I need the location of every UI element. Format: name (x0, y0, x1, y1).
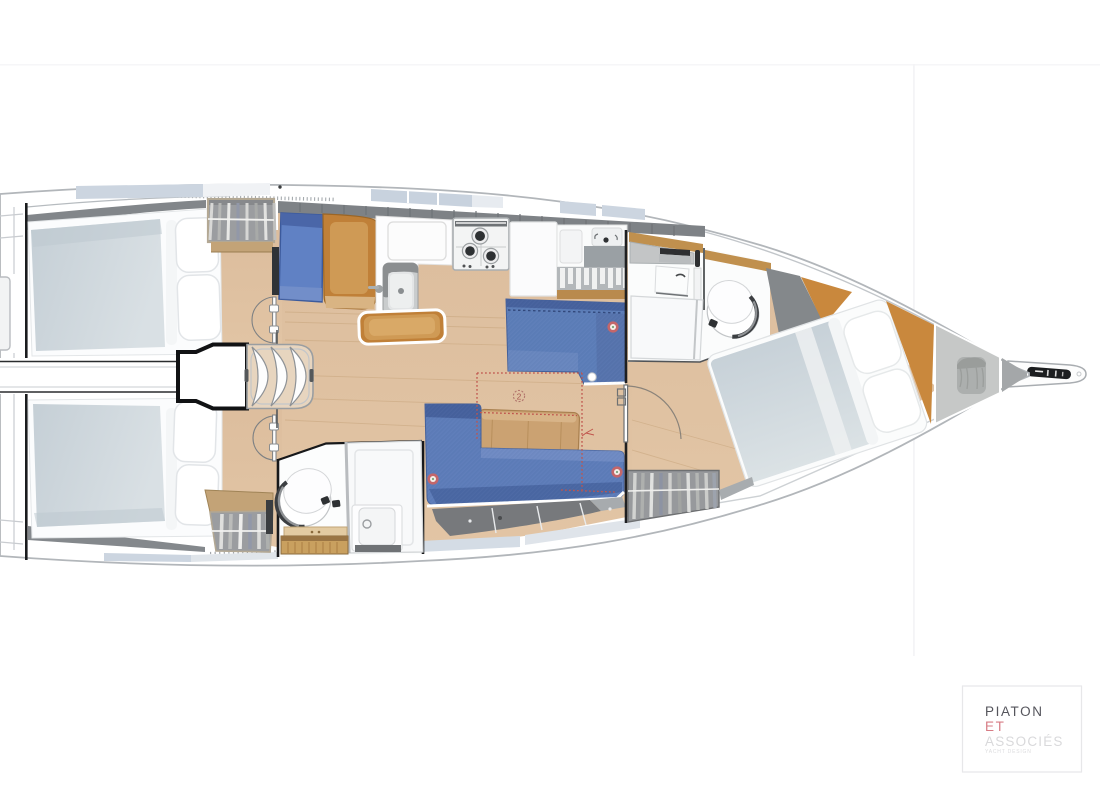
svg-text:ASSOCIÉS: ASSOCIÉS (985, 734, 1064, 749)
svg-text:ET: ET (985, 719, 1005, 734)
svg-text:YACHT DESIGN: YACHT DESIGN (985, 749, 1032, 755)
svg-text:PIATON: PIATON (985, 704, 1044, 719)
svg-text:2: 2 (517, 392, 522, 402)
